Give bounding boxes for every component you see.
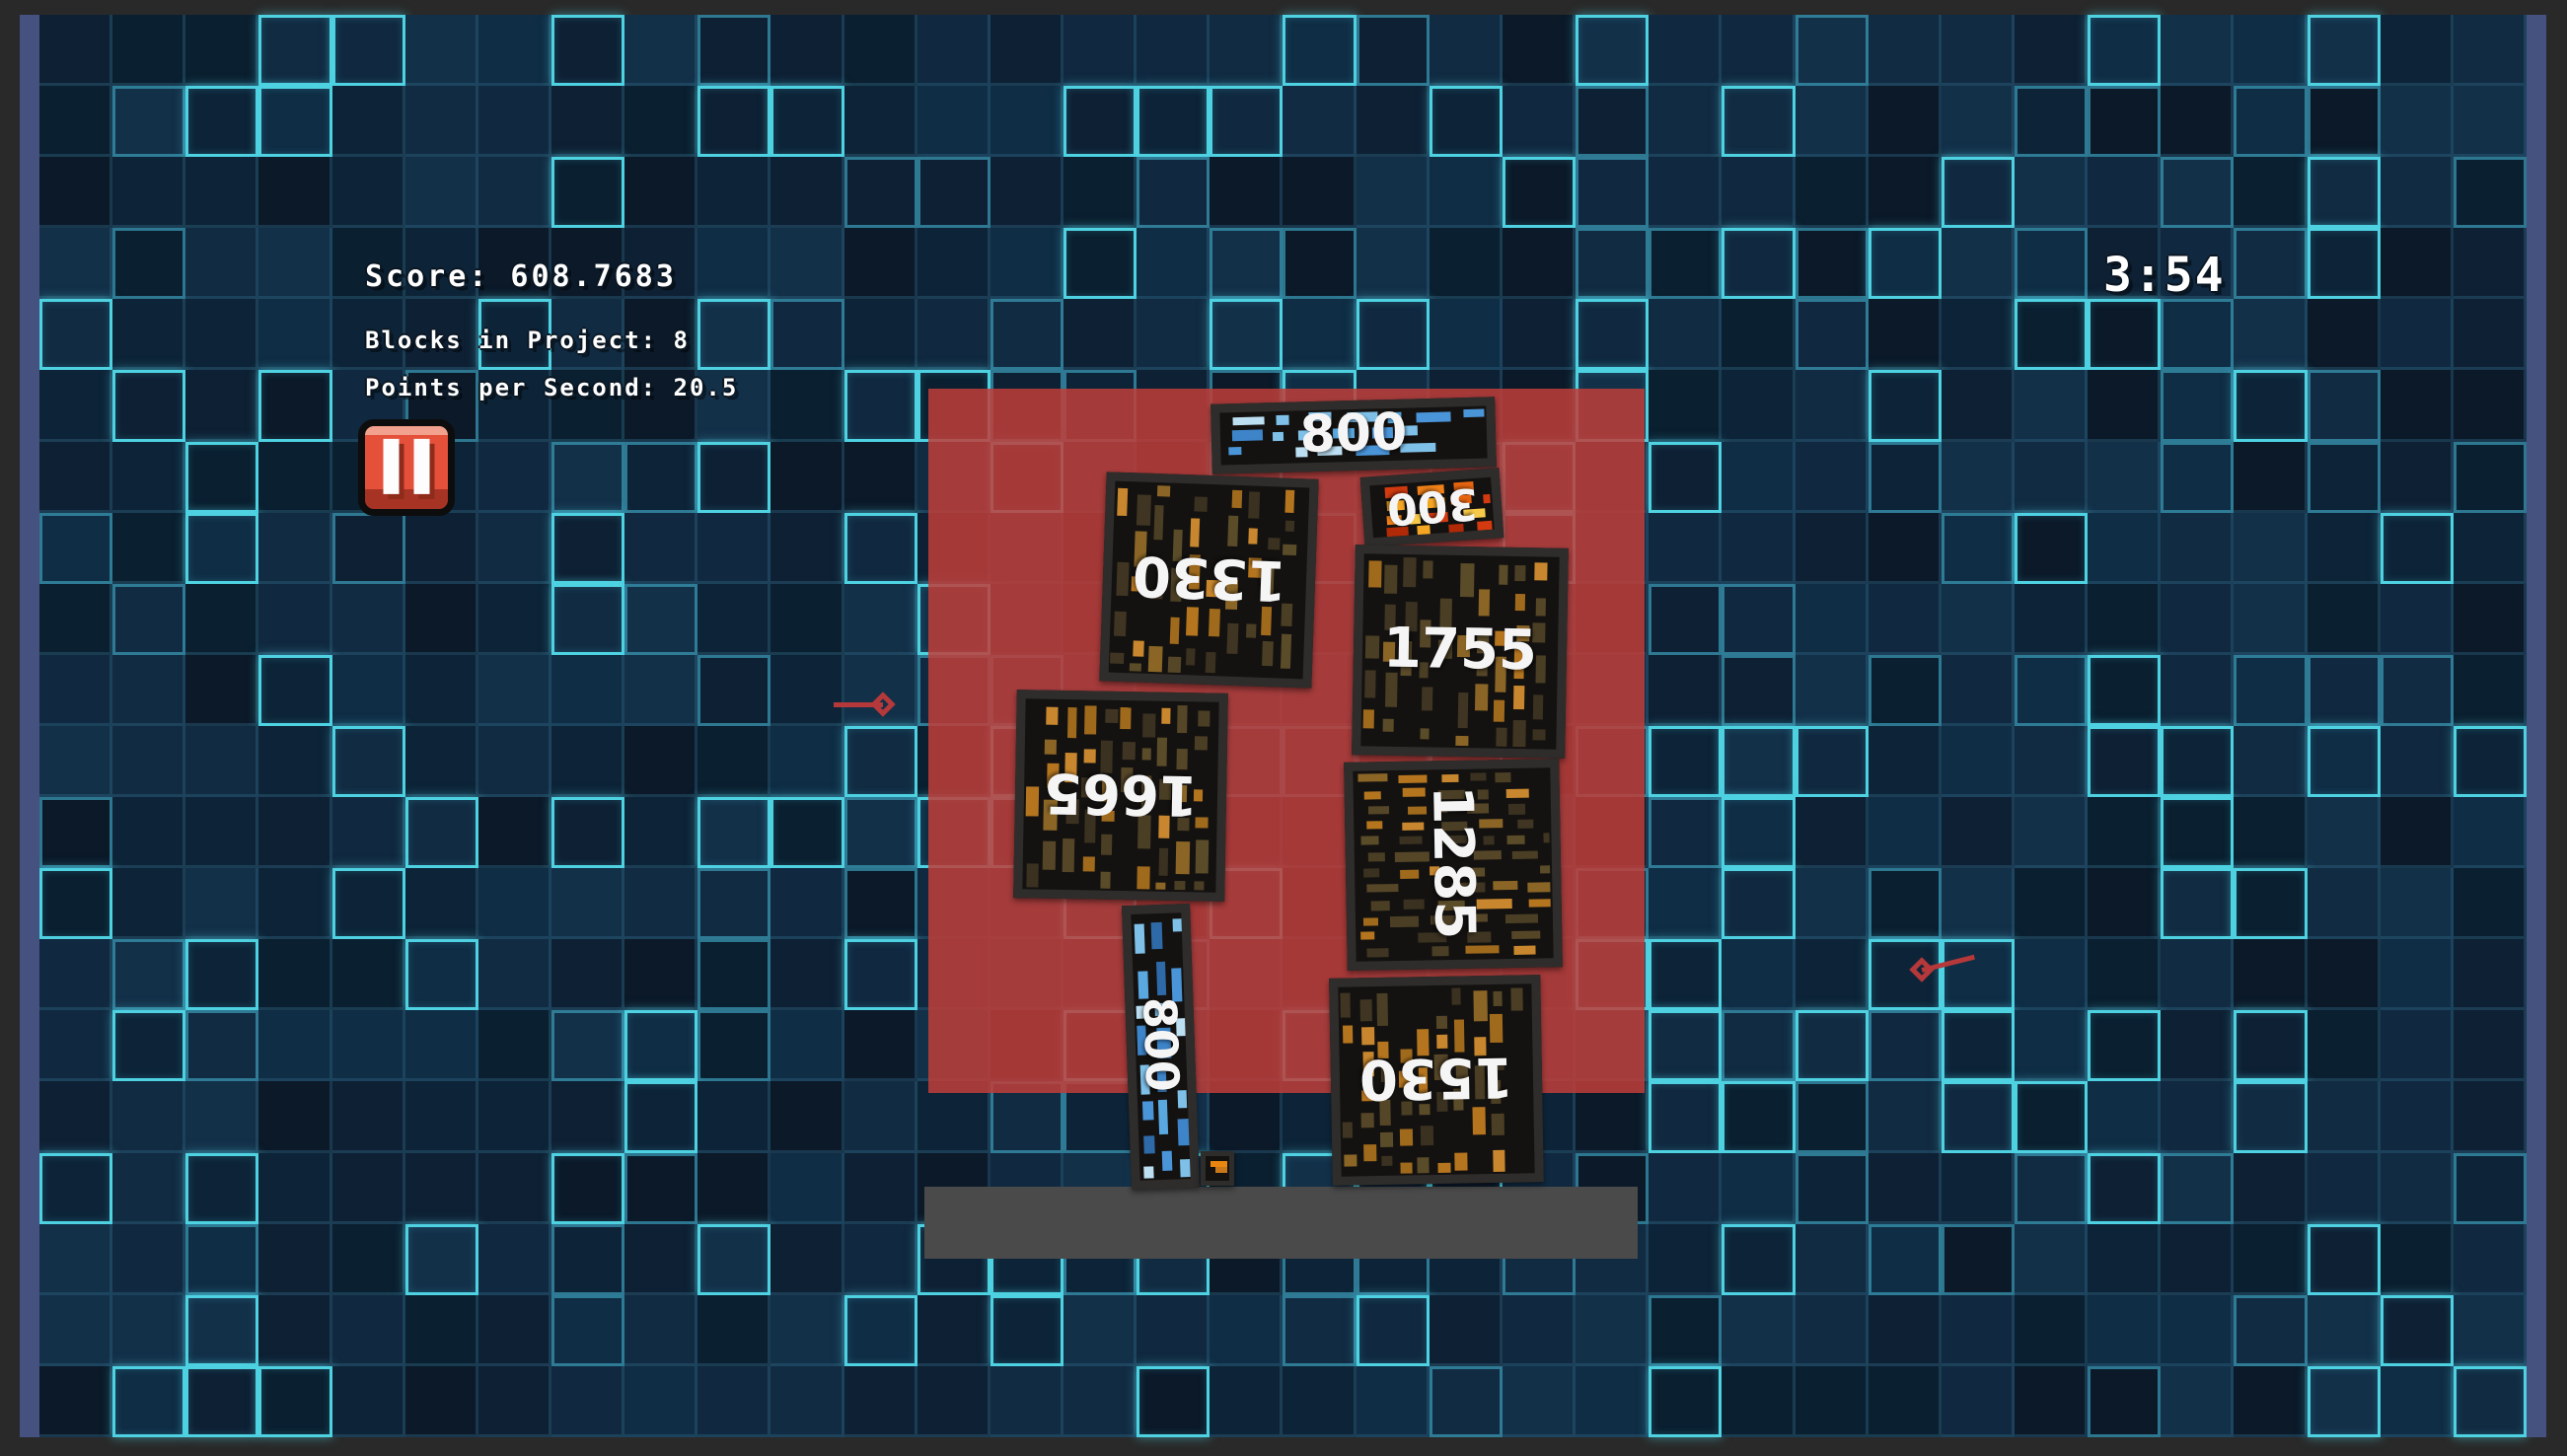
blocks-count-text: Blocks in Project: 8 (365, 327, 690, 354)
grid-cell (1283, 228, 1356, 299)
grid-cell (2088, 726, 2161, 797)
grid-cell (844, 86, 917, 157)
grid-cell (624, 1153, 697, 1224)
grid-cell (2234, 228, 2307, 299)
grid-cell (2015, 228, 2088, 299)
grid-cell (185, 1224, 258, 1295)
grid-cell (551, 726, 624, 797)
grid-cell (1796, 442, 1869, 513)
timer-text: 3:54 (2103, 248, 2226, 303)
grid-cell (112, 1153, 185, 1224)
grid-cell (1063, 86, 1137, 157)
grid-cell (2454, 1224, 2527, 1295)
grid-cell (624, 939, 697, 1010)
grid-cell (1942, 1010, 2015, 1081)
grid-cell (332, 1010, 405, 1081)
grid-cell (844, 1295, 917, 1366)
grid-cell (1649, 797, 1722, 868)
grid-cell (1722, 868, 1795, 939)
grid-cell (478, 797, 551, 868)
grid-cell (917, 15, 990, 86)
grid-cell (844, 939, 917, 1010)
grid-cell (2015, 1081, 2088, 1152)
grid-cell (770, 513, 843, 584)
grid-cell (1796, 1366, 1869, 1437)
grid-cell (478, 939, 551, 1010)
grid-cell (2015, 797, 2088, 868)
grid-cell (1430, 228, 1503, 299)
grid-cell (2381, 86, 2454, 157)
grid-cell (258, 655, 331, 726)
grid-cell (2015, 15, 2088, 86)
grid-cell (1869, 655, 1942, 726)
grid-cell (405, 1224, 478, 1295)
grid-cell (551, 1224, 624, 1295)
right-edge-bar (2527, 15, 2546, 1437)
grid-cell (405, 655, 478, 726)
block-1755[interactable]: 1755 (1352, 545, 1569, 759)
grid-cell (1576, 86, 1649, 157)
grid-cell (770, 1224, 843, 1295)
grid-cell (185, 299, 258, 370)
grid-cell (1942, 513, 2015, 584)
grid-cell (2308, 868, 2381, 939)
grid-cell (2234, 584, 2307, 655)
grid-cell (1942, 797, 2015, 868)
grid-cell (2088, 655, 2161, 726)
grid-cell (1796, 1081, 1869, 1152)
grid-cell (2381, 1081, 2454, 1152)
grid-cell (1063, 15, 1137, 86)
grid-cell (624, 1295, 697, 1366)
grid-cell (478, 1295, 551, 1366)
grid-cell (478, 86, 551, 157)
grid-cell (1649, 86, 1722, 157)
grid-cell (1430, 1295, 1503, 1366)
grid-cell (1942, 868, 2015, 939)
grid-cell (1722, 655, 1795, 726)
grid-cell (478, 1010, 551, 1081)
grid-cell (185, 584, 258, 655)
grid-cell (2234, 513, 2307, 584)
grid-cell (1357, 1366, 1430, 1437)
grid-cell (1649, 15, 1722, 86)
grid-cell (2234, 939, 2307, 1010)
pause-icon (384, 439, 430, 494)
grid-cell (1869, 442, 1942, 513)
grid-cell (551, 86, 624, 157)
grid-cell (2454, 655, 2527, 726)
grid-cell (39, 1224, 112, 1295)
grid-cell (1649, 868, 1722, 939)
grid-cell (39, 1081, 112, 1152)
grid-cell (1503, 15, 1576, 86)
grid-cell (185, 86, 258, 157)
grid-cell (697, 1224, 770, 1295)
grid-cell (405, 584, 478, 655)
grid-cell (624, 726, 697, 797)
grid-cell (1796, 655, 1869, 726)
grid-cell (332, 1081, 405, 1152)
grid-cell (112, 1010, 185, 1081)
grid-cell (1796, 157, 1869, 228)
block-value: 800 (1299, 402, 1408, 465)
grid-cell (1796, 939, 1869, 1010)
grid-cell (2234, 442, 2307, 513)
grid-cell (112, 584, 185, 655)
grid-cell (551, 442, 624, 513)
grid-cell (1796, 370, 1869, 441)
pause-button[interactable] (358, 419, 455, 516)
grid-cell (112, 86, 185, 157)
grid-cell (2161, 86, 2234, 157)
grid-cell (1430, 1366, 1503, 1437)
block-1330[interactable]: 1330 (1099, 472, 1318, 688)
grid-cell (112, 939, 185, 1010)
grid-cell (624, 1010, 697, 1081)
grid-cell (1869, 86, 1942, 157)
block-1530[interactable]: 1530 (1329, 975, 1544, 1186)
grid-cell (258, 584, 331, 655)
grid-cell (2015, 1366, 2088, 1437)
grid-cell (1722, 299, 1795, 370)
grid-cell (478, 513, 551, 584)
grid-cell (2381, 797, 2454, 868)
grid-cell (1796, 299, 1869, 370)
grid-cell (770, 584, 843, 655)
grid-cell (405, 1010, 478, 1081)
grid-cell (112, 513, 185, 584)
block-value: 1755 (1383, 616, 1538, 683)
grid-cell (39, 228, 112, 299)
grid-cell (1869, 939, 1942, 1010)
grid-cell (2234, 868, 2307, 939)
grid-cell (917, 228, 990, 299)
grid-cell (185, 228, 258, 299)
grid-cell (2308, 1366, 2381, 1437)
grid-cell (39, 726, 112, 797)
grid-cell (2308, 299, 2381, 370)
grid-cell (2308, 1081, 2381, 1152)
grid-cell (2454, 86, 2527, 157)
grid-cell (405, 513, 478, 584)
grid-cell (39, 157, 112, 228)
grid-cell (1576, 1295, 1649, 1366)
grid-cell (2088, 513, 2161, 584)
grid-cell (844, 228, 917, 299)
block-texture (1206, 1156, 1229, 1181)
grid-cell (185, 442, 258, 513)
grid-cell (1210, 1295, 1283, 1366)
grid-cell (917, 157, 990, 228)
grid-cell (2015, 299, 2088, 370)
block-300[interactable]: 300 (1360, 468, 1504, 547)
grid-cell (2308, 157, 2381, 228)
grid-cell (332, 1295, 405, 1366)
grid-cell (1649, 726, 1722, 797)
grid-cell (770, 1366, 843, 1437)
grid-cell (1210, 228, 1283, 299)
grid-cell (1942, 1153, 2015, 1224)
grid-cell (1722, 370, 1795, 441)
grid-cell (1942, 299, 2015, 370)
grid-cell (1137, 157, 1210, 228)
grid-cell (551, 939, 624, 1010)
grid-cell (770, 726, 843, 797)
grid-cell (258, 1366, 331, 1437)
grid-cell (2015, 513, 2088, 584)
grid-cell (624, 797, 697, 868)
grid-cell (624, 157, 697, 228)
grid-cell (258, 726, 331, 797)
grid-cell (2015, 1224, 2088, 1295)
grid-cell (2015, 655, 2088, 726)
grid-cell (2308, 1224, 2381, 1295)
grid-cell (1722, 1295, 1795, 1366)
grid-cell (1796, 868, 1869, 939)
grid-cell (2381, 939, 2454, 1010)
grid-cell (2308, 370, 2381, 441)
grid-cell (258, 299, 331, 370)
grid-cell (2381, 513, 2454, 584)
grid-cell (697, 86, 770, 157)
grid-cell (332, 15, 405, 86)
grid-cell (39, 1366, 112, 1437)
grid-cell (2161, 299, 2234, 370)
grid-cell (1649, 939, 1722, 1010)
grid-cell (2454, 797, 2527, 868)
grid-cell (624, 1081, 697, 1152)
grid-cell (1869, 299, 1942, 370)
grid-cell (2161, 868, 2234, 939)
grid-cell (1283, 86, 1356, 157)
grid-cell (2088, 868, 2161, 939)
grid-cell (2234, 1295, 2307, 1366)
grid-cell (697, 868, 770, 939)
block-800[interactable]: 800 (1210, 397, 1497, 474)
grid-cell (1283, 157, 1356, 228)
grid-cell (844, 1153, 917, 1224)
grid-cell (697, 939, 770, 1010)
grid-cell (2015, 939, 2088, 1010)
grid-cell (551, 797, 624, 868)
grid-cell (39, 939, 112, 1010)
grid-cell (1649, 513, 1722, 584)
grid-cell (990, 1366, 1063, 1437)
grid-cell (844, 797, 917, 868)
grid-cell (844, 1224, 917, 1295)
grid-cell (1942, 726, 2015, 797)
grid-cell (185, 797, 258, 868)
grid-cell (1649, 1153, 1722, 1224)
grid-cell (2454, 157, 2527, 228)
grid-cell (2015, 1010, 2088, 1081)
grid-cell (844, 299, 917, 370)
grid-cell (1649, 584, 1722, 655)
grid-cell (551, 868, 624, 939)
grid-cell (332, 939, 405, 1010)
grid-cell (1869, 228, 1942, 299)
grid-cell (112, 370, 185, 441)
grid-cell (405, 86, 478, 157)
grid-cell (112, 655, 185, 726)
grid-cell (478, 442, 551, 513)
block-value: 1330 (1132, 543, 1287, 612)
grid-cell (1210, 86, 1283, 157)
grid-cell (990, 228, 1063, 299)
grid-cell (2161, 157, 2234, 228)
grid-cell (2088, 1295, 2161, 1366)
grid-cell (844, 157, 917, 228)
grid-cell (2381, 299, 2454, 370)
grid-cell (2308, 1010, 2381, 1081)
grid-cell (770, 299, 843, 370)
grid-cell (770, 655, 843, 726)
grid-cell (2234, 299, 2307, 370)
grid-cell (770, 868, 843, 939)
grid-cell (1283, 299, 1356, 370)
grid-cell (1210, 157, 1283, 228)
grid-cell (1063, 1295, 1137, 1366)
grid-cell (258, 157, 331, 228)
grid-cell (697, 1366, 770, 1437)
grid-cell (1576, 1366, 1649, 1437)
grid-cell (1430, 157, 1503, 228)
grid-cell (2161, 1366, 2234, 1437)
grid-cell (1722, 1366, 1795, 1437)
grid-cell (770, 15, 843, 86)
grid-cell (1869, 726, 1942, 797)
grid-cell (112, 797, 185, 868)
grid-cell (405, 726, 478, 797)
platform (924, 1187, 1638, 1259)
grid-cell (1430, 299, 1503, 370)
block-1285[interactable]: 1285 (1344, 759, 1563, 971)
grid-cell (185, 655, 258, 726)
grid-cell (697, 157, 770, 228)
grid-cell (2088, 442, 2161, 513)
grid-cell (1796, 1295, 1869, 1366)
grid-cell (917, 1295, 990, 1366)
grid-cell (2088, 1153, 2161, 1224)
grid-cell (185, 1295, 258, 1366)
grid-cell (478, 1153, 551, 1224)
grid-cell (697, 1295, 770, 1366)
grid-cell (185, 1081, 258, 1152)
grid-cell (697, 797, 770, 868)
grid-cell (2454, 299, 2527, 370)
grid-cell (185, 939, 258, 1010)
grid-cell (2234, 15, 2307, 86)
grid-cell (478, 655, 551, 726)
grid-cell (1796, 726, 1869, 797)
grid-cell (1357, 157, 1430, 228)
grid-cell (2381, 584, 2454, 655)
grid-cell (551, 1295, 624, 1366)
grid-cell (770, 370, 843, 441)
grid-cell (551, 1153, 624, 1224)
grid-cell (112, 157, 185, 228)
grid-cell (258, 868, 331, 939)
grid-cell (185, 1366, 258, 1437)
grid-cell (844, 726, 917, 797)
grid-cell (1430, 86, 1503, 157)
grid-cell (2161, 584, 2234, 655)
block-1665[interactable]: 1665 (1013, 690, 1228, 902)
grid-cell (2454, 1153, 2527, 1224)
grid-cell (39, 86, 112, 157)
grid-cell (990, 86, 1063, 157)
grid-cell (478, 584, 551, 655)
grid-cell (332, 726, 405, 797)
grid-cell (2015, 370, 2088, 441)
grid-cell (258, 1010, 331, 1081)
grid-cell (2454, 726, 2527, 797)
grid-cell (551, 584, 624, 655)
grid-cell (624, 513, 697, 584)
grid-cell (1722, 15, 1795, 86)
block-value: 1665 (1044, 760, 1199, 827)
grid-cell (2161, 1224, 2234, 1295)
grid-cell (2454, 868, 2527, 939)
grid-cell (770, 228, 843, 299)
grid-cell (2381, 1224, 2454, 1295)
grid-cell (112, 1224, 185, 1295)
grid-cell (405, 1366, 478, 1437)
grid-cell (2454, 584, 2527, 655)
block-800[interactable]: 800 (1122, 904, 1200, 1190)
grid-cell (2161, 370, 2234, 441)
grid-cell (185, 868, 258, 939)
grid-cell (478, 1366, 551, 1437)
grid-cell (2454, 1010, 2527, 1081)
grid-cell (624, 442, 697, 513)
grid-cell (1649, 655, 1722, 726)
grid-cell (258, 228, 331, 299)
grid-cell (2308, 513, 2381, 584)
grid-cell (2088, 86, 2161, 157)
grid-cell (1942, 939, 2015, 1010)
grid-cell (112, 15, 185, 86)
block-debris[interactable] (1201, 1151, 1234, 1186)
grid-cell (1649, 1295, 1722, 1366)
grid-cell (2161, 655, 2234, 726)
grid-cell (185, 157, 258, 228)
grid-cell (2454, 1295, 2527, 1366)
grid-cell (39, 797, 112, 868)
grid-cell (1869, 1224, 1942, 1295)
grid-cell (2015, 157, 2088, 228)
grid-cell (1283, 1366, 1356, 1437)
grid-cell (39, 584, 112, 655)
grid-cell (770, 939, 843, 1010)
grid-cell (844, 15, 917, 86)
grid-cell (2308, 1295, 2381, 1366)
grid-cell (112, 299, 185, 370)
grid-cell (405, 15, 478, 86)
grid-cell (1796, 15, 1869, 86)
grid-cell (2088, 15, 2161, 86)
grid-cell (1649, 1010, 1722, 1081)
grid-cell (2454, 15, 2527, 86)
grid-cell (2088, 370, 2161, 441)
pause-bar (414, 439, 430, 494)
grid-cell (1942, 1295, 2015, 1366)
grid-cell (478, 868, 551, 939)
grid-cell (112, 1366, 185, 1437)
block-value: 1530 (1358, 1045, 1513, 1112)
grid-cell (258, 86, 331, 157)
